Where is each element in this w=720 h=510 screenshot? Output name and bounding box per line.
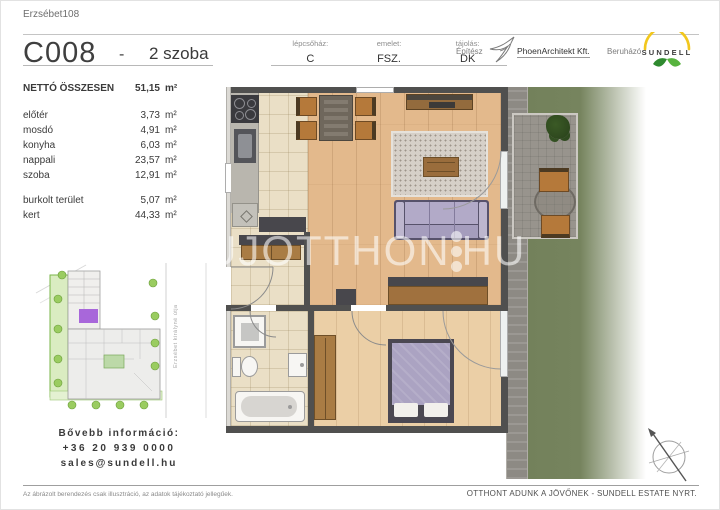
room-count: 2 szoba	[149, 44, 209, 64]
developer-name: SUNDELL	[642, 48, 693, 57]
room-unit: m²	[160, 108, 183, 123]
room-value: 44,33	[120, 208, 160, 223]
room-name: mosdó	[23, 123, 120, 138]
unit-underline	[23, 65, 213, 66]
area-total-row: NETTÓ ÖSSZESEN 51,15 m²	[23, 81, 198, 96]
sundell-leaf-left-icon	[653, 58, 667, 66]
room-unit: m²	[160, 208, 183, 223]
header-divider	[23, 34, 699, 35]
area-row-konyha: konyha 6,03 m²	[23, 138, 198, 153]
area-total-unit: m²	[160, 81, 183, 96]
room-value: 4,91	[120, 123, 160, 138]
site-plan-pool	[104, 355, 124, 368]
area-row-burkolt: burkolt terület 5,07 m²	[23, 193, 198, 208]
header-col-staircase: lépcsőház: C	[271, 39, 350, 65]
area-row-eloter: előtér 3,73 m²	[23, 108, 198, 123]
footer-slogan: OTTHONT ADUNK A JÖVŐNEK - SUNDELL ESTATE…	[467, 489, 697, 498]
staircase-value: C	[271, 53, 350, 65]
unit-separator: -	[119, 46, 124, 64]
header-col-floor: emelet: FSZ.	[350, 39, 429, 65]
room-unit: m²	[160, 153, 183, 168]
room-value: 23,57	[120, 153, 160, 168]
door-arcs	[216, 87, 508, 433]
room-unit: m²	[160, 193, 183, 208]
room-value: 12,91	[120, 168, 160, 183]
room-value: 6,03	[120, 138, 160, 153]
area-row-mosdo: mosdó 4,91 m²	[23, 123, 198, 138]
floor-plan	[216, 87, 508, 433]
compass-icon	[639, 425, 699, 485]
area-row-kert: kert 44,33 m²	[23, 208, 198, 223]
room-unit: m²	[160, 168, 183, 183]
sundell-sun-arc-icon	[645, 32, 689, 49]
architect-name: PhoenArchitekt Kft.	[517, 46, 590, 58]
contact-phone: +36 20 939 0000	[29, 443, 209, 454]
room-name: előtér	[23, 108, 120, 123]
room-name: konyha	[23, 138, 120, 153]
room-name: burkolt terület	[23, 193, 120, 208]
project-name: Erzsébet108	[23, 9, 79, 20]
staircase-label: lépcsőház:	[271, 39, 350, 48]
footer-disclaimer: Az ábrázolt berendezés csak illusztráció…	[23, 491, 233, 498]
room-name: kert	[23, 208, 120, 223]
contact-email: sales@sundell.hu	[29, 458, 209, 469]
area-table: NETTÓ ÖSSZESEN 51,15 m² előtér 3,73 m² m…	[23, 81, 198, 223]
floor-label: emelet:	[350, 39, 429, 48]
sundell-leaf-right-icon	[667, 58, 681, 66]
room-unit: m²	[160, 138, 183, 153]
architect-label: Építész	[456, 47, 483, 56]
contact-block: Bővebb információ: +36 20 939 0000 sales…	[29, 428, 209, 469]
room-name: szoba	[23, 168, 120, 183]
columns-underline	[271, 65, 507, 66]
area-total-value: 51,15	[120, 81, 160, 96]
area-total-label: NETTÓ ÖSSZESEN	[23, 81, 120, 96]
architect-bird-logo-icon	[488, 34, 516, 64]
terrace-chair-bottom	[541, 215, 570, 238]
contact-heading: Bővebb információ:	[29, 428, 209, 439]
room-value: 3,73	[120, 108, 160, 123]
terrace-chair-top	[539, 168, 569, 192]
area-row-nappali: nappali 23,57 m²	[23, 153, 198, 168]
room-value: 5,07	[120, 193, 160, 208]
sundell-logo: SUNDELL	[637, 32, 697, 70]
footer-divider	[23, 485, 699, 486]
floor-value: FSZ.	[350, 53, 429, 65]
room-name: nappali	[23, 153, 120, 168]
datasheet-page: Erzsébet108 C008 - 2 szoba lépcsőház: C …	[0, 0, 720, 510]
street-name: Erzsébet királyné útja	[173, 304, 179, 368]
site-plan-map: Erzsébet királyné útja	[34, 263, 209, 418]
area-row-szoba: szoba 12,91 m²	[23, 168, 198, 183]
terrace-plant	[546, 115, 570, 139]
room-unit: m²	[160, 123, 183, 138]
site-plan-unit-highlight	[79, 309, 98, 323]
